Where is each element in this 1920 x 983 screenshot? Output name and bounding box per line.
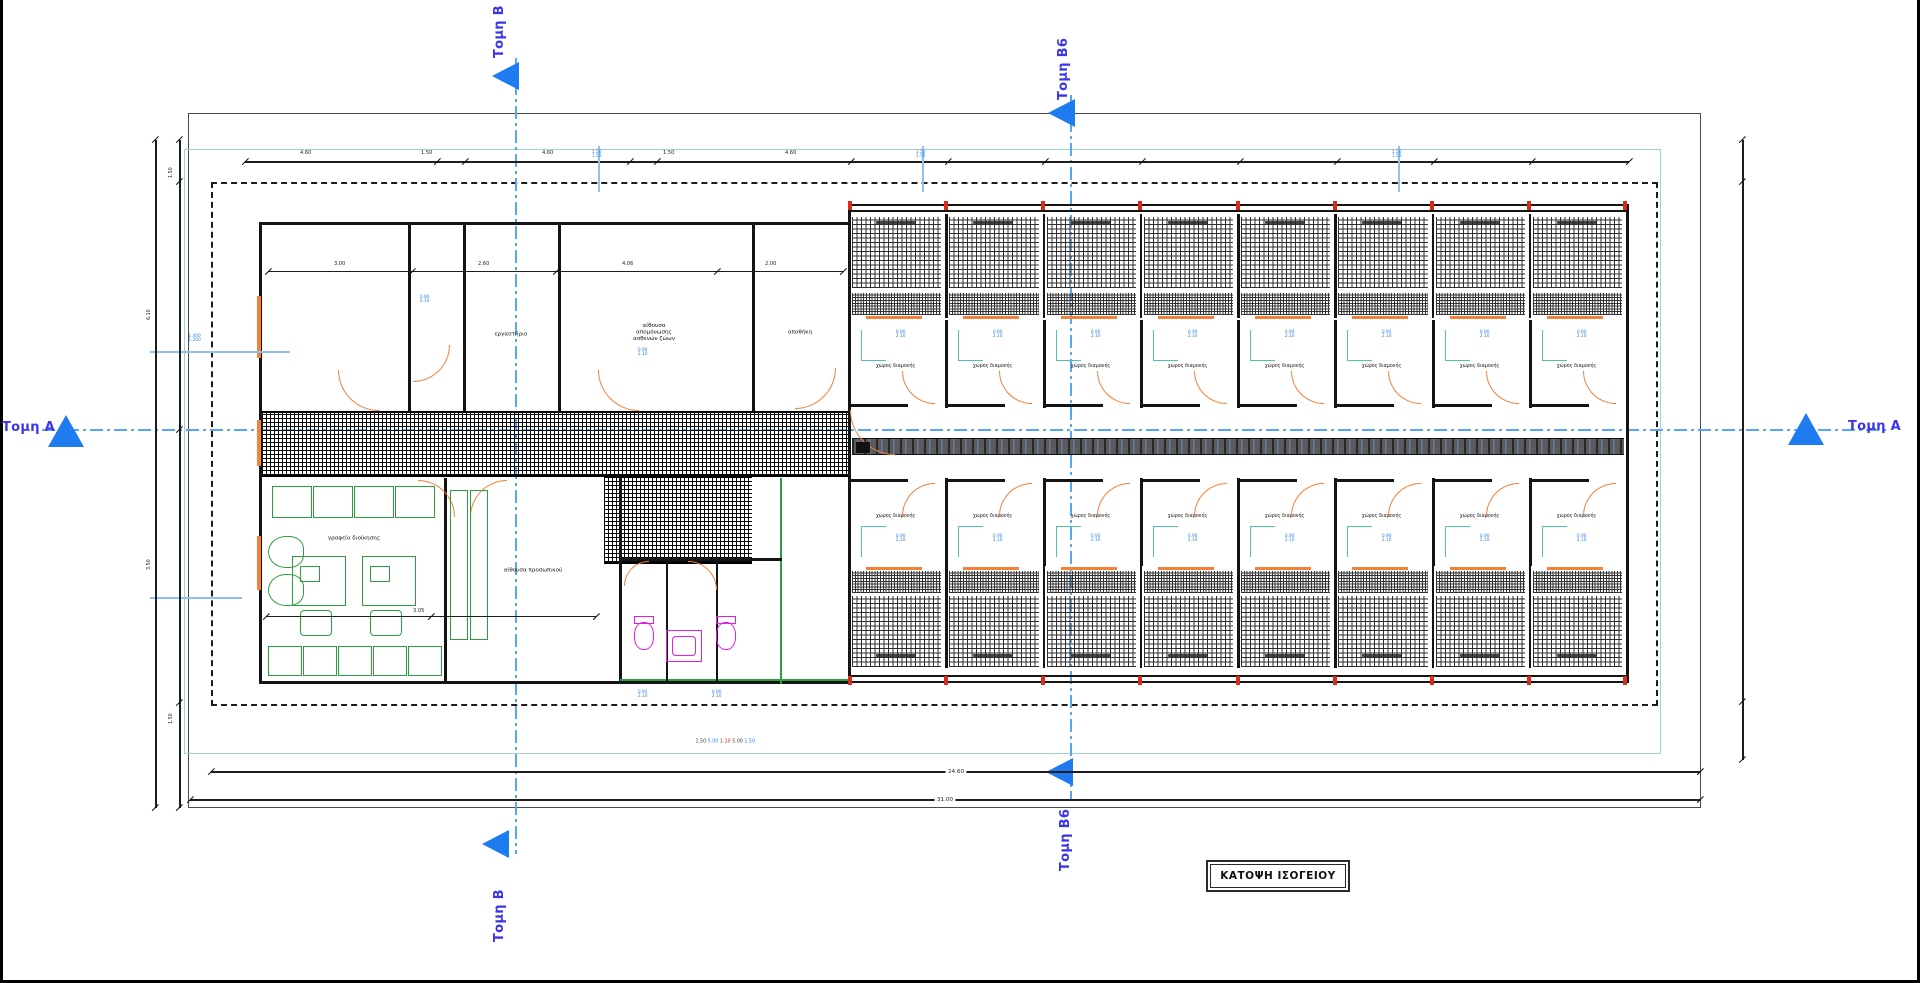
dimension-wc-values: 0.902.10 [638,690,648,699]
dimension-bottom-inner: 24.60 [211,771,1700,773]
axis-tick-values: 1.501.50 [592,150,602,159]
kennel-wall [1334,320,1337,408]
outdoor-run-hatch [1338,217,1427,288]
dimension-top-line [245,161,1629,163]
dimension-tick [1739,698,1746,705]
door-arc [902,483,935,516]
kennel-threshold [1352,567,1408,570]
door-arc [999,483,1032,516]
room-label-isolation: αίθουσα απομόνωσης ασθενών ζώων [609,322,699,341]
water-pipe [861,526,886,557]
kennel-room-label: χώρος διαμονής [862,513,929,519]
window-left-1 [257,296,261,358]
covered-strip-hatch [1241,571,1330,593]
kennel-wall [945,320,948,408]
kennel-wing: 0.902.10χώρος διαμονήςχώρος διαμονής0.90… [848,204,1629,686]
kennel-wall [945,564,948,668]
kennel-door-dim: 0.902.10 [1382,330,1392,339]
dimension-tick [176,136,183,143]
water-pipe [1056,330,1081,361]
dimension-interior-values: 3.002.604.062.00 [268,260,843,267]
outdoor-run-hatch [1241,217,1330,288]
dimension-value: 2.10 [638,694,648,698]
run-label-mark [1362,221,1402,224]
dimension-value: 2.10 [1090,538,1100,542]
corridor-wall [1237,479,1297,482]
kennel-room-label: χώρος διαμονής [1543,513,1610,519]
dimension-tick [176,804,183,811]
dimension-value: 1.50 [663,150,674,156]
dimension-value: 4.60 [542,150,553,156]
kennel-room-label: χώρος διαμονής [1154,363,1221,369]
dimension-left-inner [179,140,181,808]
door-arc [902,371,935,404]
kennel-wall [1140,214,1143,318]
kennel-wall [1334,214,1337,318]
water-pipe [1347,330,1372,361]
dimension-value: 4.60 [300,150,311,156]
kennel-room-label: χώρος διαμονής [1446,513,1513,519]
dimension-value: 2.10 [896,334,906,338]
kennel-room-label: χώρος διαμονής [1543,363,1610,369]
dimension-office-value: 3.05 [413,608,424,614]
water-pipe [958,526,983,557]
kennel-wall [1140,564,1143,668]
kennel-wall [1432,214,1435,318]
kennel-threshold [866,316,922,319]
kennel-threshold [1061,316,1117,319]
wc-fixture-shower-tray [672,636,696,656]
dimension-value: 1.50 [592,154,602,158]
dimension-value: 2.10 [896,538,906,542]
kennel-wall [1432,564,1435,668]
kennel-wall [1334,478,1337,566]
kennel-door-dim: 0.902.10 [1382,534,1392,543]
junction-mark-red [1138,201,1142,210]
kennel-threshold [1255,316,1311,319]
corridor-wall [1529,404,1589,407]
dimension-value: 1.50 [421,150,432,156]
kennel-wall [1237,320,1240,408]
kennel-wall [1140,478,1143,566]
run-label-mark [1265,221,1305,224]
dimension-value: 1.50 [916,154,926,158]
furniture-chair [300,610,332,636]
junction-mark-red [1236,201,1240,210]
corridor-wall [1432,404,1492,407]
junction-mark-red [1041,676,1045,685]
corridor-wall [945,479,1005,482]
corridor-wall [1432,479,1492,482]
junction-mark-red [1527,676,1531,685]
door-arc [999,371,1032,404]
kennel-wall [1043,564,1046,668]
furniture-counter [272,486,312,518]
section-arrow-right-A-icon [1788,413,1824,445]
room-label-staff-room: αίθουσα προσωπικού [486,567,580,573]
dimension-window-values: 1.4001.200 [188,334,200,343]
section-marker-right-A: Τομη Α [1848,419,1901,434]
run-label-mark [1460,654,1500,657]
room-label-lab: εργαστήριο [475,331,547,337]
furniture-chair [370,610,402,636]
kennel-threshold [1352,316,1408,319]
kennel-room-label: χώρος διαμονής [1057,513,1124,519]
dimension-value: 1.10 [720,739,732,745]
outdoor-run-hatch [1533,217,1622,288]
dimension-value: 2.10 [1479,538,1489,542]
outdoor-run-hatch [949,217,1038,288]
dimension-tick [152,804,159,811]
kennel-door-dim: 0.902.10 [1285,330,1295,339]
furniture-shelf [450,490,468,640]
dimension-value: 5.00 [708,739,720,745]
kennel-door-dim: 0.902.10 [1285,534,1295,543]
corridor-wall [1140,404,1200,407]
kennel-wall [1237,214,1240,318]
kennel-room-label: χώρος διαμονής [960,513,1027,519]
kennel-threshold [866,567,922,570]
run-label-mark [1362,654,1402,657]
kennel-threshold [1158,316,1214,319]
dimension-chain: 1.50 5.00 1.10 5.00 1.50 [695,739,755,745]
dimension-interior-line [268,271,843,272]
kennel-room-label: χώρος διαμονής [960,363,1027,369]
axis-tick-values: 1.501.50 [916,150,926,159]
water-pipe [1250,526,1275,557]
water-pipe [861,330,886,361]
run-label-mark [1168,654,1208,657]
kennel-room-label: χώρος διαμονής [1349,513,1416,519]
window-left-2 [257,420,261,466]
kennel-wall [1529,320,1532,408]
kennel-room-label: χώρος διαμονής [1349,363,1416,369]
door-arc [1194,371,1227,404]
dimension-value: 2.10 [1479,334,1489,338]
corridor-wall [1043,404,1103,407]
kennel-threshold [1450,316,1506,319]
junction-mark-red [1430,676,1434,685]
section-arrow-left-A-icon [48,415,84,447]
kennel-wall [1432,320,1435,408]
junction-mark-red [1623,201,1627,210]
dimension-value: 2.60 [478,261,489,267]
title-box: ΚΑΤΟΨΗ ΙΣΟΓΕΙΟΥ [1206,860,1350,892]
dimension-total-inner: 24.60 [945,768,966,774]
water-pipe [1153,526,1178,557]
door-arc [1388,483,1421,516]
kennel-door-dim: 0.902.10 [1577,534,1587,543]
dimension-tick [1739,136,1746,143]
furniture-monitor [370,566,390,582]
furniture-monitor [300,566,320,582]
water-pipe [1347,526,1372,557]
corridor-wall [1237,404,1297,407]
junction-mark-red [1333,201,1337,210]
kennel-threshold [1255,567,1311,570]
kennel-wall [1043,478,1046,566]
dimension-value: 2.00 [765,261,776,267]
kennel-wall [945,214,948,318]
outdoor-run-hatch [1436,217,1525,288]
junction-mark-red [1041,201,1045,210]
run-label-mark [1071,654,1111,657]
dimension-left-value: 1.50 [168,167,174,178]
water-pipe [1542,526,1567,557]
water-pipe [1250,330,1275,361]
dimension-value: 2.10 [712,694,722,698]
door-arc [1291,483,1324,516]
junction-mark-red [1430,201,1434,210]
kennel-room-label: χώρος διαμονής [1154,513,1221,519]
dimension-window-line [150,351,290,353]
water-pipe [1445,526,1470,557]
covered-strip-hatch [1144,571,1233,593]
covered-strip-hatch [1047,293,1136,315]
door-arc [1097,483,1130,516]
dimension-value: 2.10 [1285,538,1295,542]
door-arc [1486,371,1519,404]
kennel-door-dim: 0.902.10 [1479,330,1489,339]
outdoor-run-hatch [1047,217,1136,288]
furniture-counter [395,486,435,518]
covered-strip-hatch [949,293,1038,315]
furniture-counter [313,486,353,518]
section-marker-bottom-B: Τομη Β [492,864,507,942]
section-arrow-top-B-icon [492,62,519,90]
dimension-tick [152,136,159,143]
junction-mark-red [848,676,852,685]
dimension-tick [176,699,183,706]
dimension-left-outer [155,140,157,808]
kennel-room-label: χώρος διαμονής [1251,363,1318,369]
door-arc [1388,371,1421,404]
dimension-tick [1739,178,1746,185]
furniture-shelf [470,490,488,640]
door-arc [1486,483,1519,516]
junction-mark-red [944,201,948,210]
kennel-door-dim: 0.902.10 [1188,330,1198,339]
kennel-door-dim: 0.902.10 [1090,534,1100,543]
run-label-mark [1460,221,1500,224]
dimension-value: 3.00 [334,261,345,267]
section-arrow-top-B6-icon [1048,99,1075,127]
kennel-wall [1237,478,1240,566]
junction-mark-red [1527,201,1531,210]
run-label-mark [1071,221,1111,224]
run-label-mark [1557,654,1597,657]
dimension-value: 2.10 [420,299,430,303]
kennel-threshold [963,567,1019,570]
covered-strip-hatch [1338,571,1427,593]
corridor-wall [945,404,1005,407]
room-label-storage: αποθήκη [765,329,835,335]
kennel-wall [945,478,948,566]
glass-partition [780,478,782,684]
dimension-value: 1.50 [744,739,755,745]
corridor-wall [848,479,908,482]
drawing-title: ΚΑΤΟΨΗ ΙΣΟΓΕΙΟΥ [1220,870,1336,882]
dimension-value: 2.10 [1188,334,1198,338]
covered-strip-hatch [1533,293,1622,315]
furniture-counter [338,646,372,676]
dimension-right-line [1742,140,1744,760]
covered-strip-hatch [1047,571,1136,593]
wc-fixture-toilet [716,622,736,650]
dimension-value: 5.00 [732,739,744,745]
corridor-wall [1043,479,1103,482]
kennel-wall [1043,320,1046,408]
dimension-value: 2.10 [1188,538,1198,542]
floorplan-canvas: Τομη Β Τομη Β6 Τομη Α Τομη Α Τομη Β6 Τομ… [0,0,1920,983]
corridor-wall [848,404,908,407]
furniture-counter [354,486,394,518]
outdoor-run-hatch [1144,217,1233,288]
kennel-room-label: χώρος διαμονής [862,363,929,369]
screen-edge-left [0,0,3,983]
dimension-value: 1.50 [695,739,707,745]
run-label-mark [876,654,916,657]
corridor-drain-channel [852,438,1624,455]
kennel-threshold [1061,567,1117,570]
corridor-wall [1334,404,1394,407]
kennel-threshold [963,316,1019,319]
covered-strip-hatch [852,571,941,593]
entrance-ramp-hatch-ext [604,476,752,564]
dimension-value: 2.10 [1090,334,1100,338]
covered-strip-hatch [1144,293,1233,315]
covered-strip-hatch [1436,293,1525,315]
corridor-drain-pit [856,442,870,453]
dimension-tick [1739,756,1746,763]
entrance-ramp-hatch [262,411,848,477]
dimension-bottom-outer: 31.00 [190,799,1700,801]
run-label-mark [876,221,916,224]
run-label-mark [973,221,1013,224]
covered-strip-hatch [1436,571,1525,593]
kennel-door-dim: 0.902.10 [896,330,906,339]
covered-strip-hatch [949,571,1038,593]
dimension-value: 4.06 [622,261,633,267]
section-marker-bottom-B6: Τομη Β6 [1058,793,1073,871]
dimension-office-line [266,616,596,617]
kennel-wall [1529,478,1532,566]
door-arc [1097,371,1130,404]
water-pipe [1056,526,1081,557]
kennel-room-label: χώρος διαμονής [1251,513,1318,519]
water-pipe [1542,330,1567,361]
junction-mark-red [1333,676,1337,685]
water-pipe [1445,330,1470,361]
dimension-value: 2.10 [993,334,1003,338]
covered-strip-hatch [1338,293,1427,315]
dimension-door-values: 0.902.10 [420,295,430,304]
axis-tick-values: 1.501.50 [1392,150,1402,159]
corridor-wall [1529,479,1589,482]
door-arc [1194,483,1227,516]
dimension-value: 2.10 [1577,334,1587,338]
room-label-isolation-line3: ασθενών ζώων [609,335,699,341]
kennel-room-label: χώρος διαμονής [1446,363,1513,369]
dimension-left-value: 1.50 [168,713,174,724]
dimension-value: 4.60 [785,150,796,156]
kennel-wall [1334,564,1337,668]
dimension-window-line [150,597,242,599]
dimension-value: 1.200 [188,338,200,342]
dimension-left-value: 3.50 [146,559,152,570]
dimension-value: 2.10 [1285,334,1295,338]
corridor-wall [1334,479,1394,482]
corridor-wall [1140,479,1200,482]
furniture-counter [303,646,337,676]
furniture-counter [408,646,442,676]
dimension-value: 1.50 [1392,154,1402,158]
junction-mark-red [848,201,852,210]
section-arrow-bottom-B-icon [482,830,509,858]
dimension-total-outer: 31.00 [935,796,956,802]
kennel-threshold [1547,567,1603,570]
kennel-wall [1140,320,1143,408]
kennel-threshold [1158,567,1214,570]
kennel-door-dim: 0.902.10 [1577,330,1587,339]
water-pipe [958,330,983,361]
section-marker-top-B: Τομη Β [492,0,507,58]
kennel-door-dim: 0.902.10 [896,534,906,543]
kennel-wall [1529,564,1532,668]
run-label-mark [973,654,1013,657]
dimension-tick [176,178,183,185]
furniture-counter [268,646,302,676]
section-marker-top-B6: Τομη Β6 [1056,34,1071,100]
kennel-door-dim: 0.902.10 [993,534,1003,543]
junction-mark-red [1236,676,1240,685]
junction-mark-red [944,676,948,685]
dimension-value: 2.10 [1382,334,1392,338]
glass-partition-bottom [620,679,851,681]
kennel-door-dim: 0.902.10 [1090,330,1100,339]
kennel-wall [1237,564,1240,668]
run-label-mark [1265,654,1305,657]
title-box-inner: ΚΑΤΟΨΗ ΙΣΟΓΕΙΟΥ [1210,864,1346,888]
door-arc [1583,483,1616,516]
run-label-mark [1557,221,1597,224]
dimension-value: 2.10 [1577,538,1587,542]
kennel-door-dim: 0.902.10 [993,330,1003,339]
dimension-wc-values: 0.902.10 [712,690,722,699]
dimension-value: 2.10 [1382,538,1392,542]
water-pipe [1153,330,1178,361]
kennel-wall [1529,214,1532,318]
dimension-door-values: 0.902.10 [638,348,648,357]
kennel-threshold [1547,316,1603,319]
kennel-door-dim: 0.902.10 [1188,534,1198,543]
covered-strip-hatch [1533,571,1622,593]
wc-fixture-toilet [634,622,654,650]
room-label-admin-office: γραφείο διοίκησης [304,535,403,541]
kennel-room-label: χώρος διαμονής [1057,363,1124,369]
kennel-wall [1043,214,1046,318]
kennel-threshold [1450,567,1506,570]
outdoor-run-hatch [852,217,941,288]
dimension-value: 2.10 [638,352,648,356]
window-left-3 [257,536,261,590]
covered-strip-hatch [1241,293,1330,315]
run-label-mark [1168,221,1208,224]
door-arc [1583,371,1616,404]
door-arc [1291,371,1324,404]
dimension-top-values: 4.601.504.601.504.60 [245,149,851,156]
kennel-wall [1432,478,1435,566]
